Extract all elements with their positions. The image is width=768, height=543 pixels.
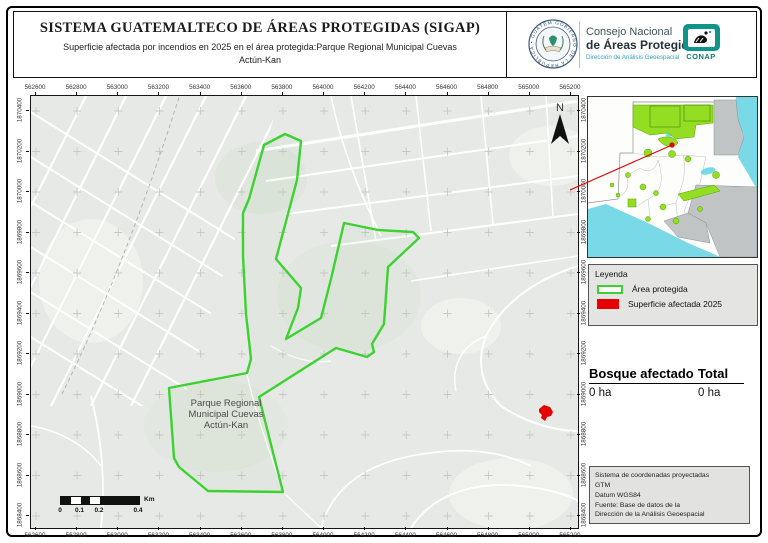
subtitle-line-1: Superficie afectada por incendios en 202… <box>63 42 457 52</box>
stats-divider <box>589 383 744 384</box>
axis-label-y: 1868400 <box>17 503 24 528</box>
scale-label: 0.4 <box>133 507 142 514</box>
credits-panel: Sistema de coordenadas proyectadasGTMDat… <box>589 466 750 524</box>
north-label: N <box>547 102 573 114</box>
axis-label-y: 1868600 <box>581 462 588 487</box>
axis-label-y: 1868400 <box>581 503 588 528</box>
axis-tick <box>26 232 29 233</box>
axis-label-x: 564000 <box>313 532 334 539</box>
north-arrow: N <box>547 102 573 151</box>
stats-col2-header: Total <box>698 366 744 381</box>
stats-col1-value: 0 ha <box>589 387 611 399</box>
legend-item: Área protegida <box>597 284 757 294</box>
axis-label-y: 1869000 <box>581 381 588 406</box>
inset-overview-map <box>587 96 758 258</box>
legend-items: Área protegidaSuperficie afectada 2025 <box>589 284 757 309</box>
credits-lines: Sistema de coordenadas proyectadasGTMDat… <box>595 471 744 520</box>
park-label-line: Parque Regional <box>151 398 301 409</box>
axis-label-x: 564600 <box>436 532 457 539</box>
legend-title: Leyenda <box>595 269 757 279</box>
axis-label-y: 1869000 <box>17 381 24 406</box>
page-title: SISTEMA GUATEMALTECO DE ÁREAS PROTEGIDAS… <box>24 20 496 37</box>
axis-label-x: 563800 <box>271 84 292 91</box>
legend-item-label: Área protegida <box>632 284 688 294</box>
map-report-page: { "header": { "title": "SISTEMA GUATEMAL… <box>0 0 768 543</box>
scale-bar <box>60 496 140 505</box>
axis-label-x: 563000 <box>107 532 128 539</box>
axis-tick <box>26 272 29 273</box>
burned-area-swatch <box>597 299 619 309</box>
axis-label-y: 1868600 <box>17 462 24 487</box>
axis-label-x: 563400 <box>189 532 210 539</box>
header: SISTEMA GUATEMALTECO DE ÁREAS PROTEGIDAS… <box>13 11 757 78</box>
axis-label-x: 563200 <box>148 84 169 91</box>
axis-label-x: 563200 <box>148 532 169 539</box>
axis-label-y: 1869400 <box>17 300 24 325</box>
stats-col2-value: 0 ha <box>698 387 744 399</box>
stats-value-row: 0 ha 0 ha <box>589 387 744 399</box>
axis-label-y: 1870400 <box>17 98 24 123</box>
axis-label-x: 564600 <box>436 84 457 91</box>
legend-panel: Leyenda Área protegidaSuperficie afectad… <box>588 264 758 326</box>
axis-label-x: 564000 <box>313 84 334 91</box>
conap-label: CONAP <box>679 52 723 61</box>
conap-logo-glyph <box>688 29 715 47</box>
subtitle-line-2: Actún-Kan <box>239 55 281 65</box>
stats-header-row: Bosque afectado Total <box>589 366 744 381</box>
legend-item: Superficie afectada 2025 <box>597 299 757 309</box>
logo-divider <box>579 21 580 68</box>
logo-area: GOBIERNO DE LA REPÚBLICA • GUATEMALA • C… <box>507 12 756 77</box>
axis-label-x: 565200 <box>559 84 580 91</box>
axis-label-x: 564800 <box>477 84 498 91</box>
axis-label-y: 1868800 <box>17 422 24 447</box>
axis-label-y: 1869800 <box>17 219 24 244</box>
main-map: Parque RegionalMunicipal CuevasActún-Kan… <box>30 95 579 529</box>
axis-tick <box>26 515 29 516</box>
protected-area-swatch <box>597 285 623 294</box>
conap-logo: CONAP <box>679 24 723 61</box>
axis-label-y: 1869400 <box>581 300 588 325</box>
north-arrow-icon <box>551 114 569 146</box>
axis-label-x: 563800 <box>271 532 292 539</box>
scale-label: 0.2 <box>94 507 103 514</box>
scale-unit: Km <box>144 496 154 503</box>
park-label-line: Municipal Cuevas <box>151 409 301 420</box>
scale-segment <box>71 497 81 504</box>
axis-label-y: 1870000 <box>17 179 24 204</box>
scale-label: 0.1 <box>75 507 84 514</box>
axis-label-x: 562600 <box>24 532 45 539</box>
axis-tick <box>26 353 29 354</box>
axis-tick <box>26 110 29 111</box>
scale-labels: 00.10.20.4 <box>60 507 150 517</box>
axis-tick <box>26 151 29 152</box>
scale: Km 00.10.20.4 <box>60 496 150 517</box>
credit-line: Sistema de coordenadas proyectadas <box>595 471 744 481</box>
guatemala-seal-icon: GOBIERNO DE LA REPÚBLICA • GUATEMALA • <box>527 18 579 70</box>
conap-logo-box <box>683 24 720 51</box>
axis-label-y: 1869200 <box>581 341 588 366</box>
legend-item-label: Superficie afectada 2025 <box>628 299 722 309</box>
axis-label-x: 565200 <box>559 532 580 539</box>
axis-tick <box>26 434 29 435</box>
scale-segment <box>61 497 71 504</box>
axis-label-y: 1869600 <box>581 260 588 285</box>
axis-label-x: 562800 <box>66 84 87 91</box>
axis-label-x: 564400 <box>395 532 416 539</box>
axis-tick <box>26 313 29 314</box>
map-canvas <box>31 96 578 528</box>
axis-label-y: 1868800 <box>581 422 588 447</box>
axis-label-y: 1869600 <box>17 260 24 285</box>
stats-panel: Bosque afectado Total 0 ha 0 ha <box>589 366 744 399</box>
inset-canvas <box>588 97 757 257</box>
axis-label-y: 1869200 <box>17 341 24 366</box>
axis-label-x: 564800 <box>477 532 498 539</box>
axis-label-x: 563600 <box>230 532 251 539</box>
scale-segment <box>100 497 139 504</box>
axis-label-x: 563000 <box>107 84 128 91</box>
stats-col1-header: Bosque afectado <box>589 366 694 381</box>
credit-line: GTM <box>595 481 744 491</box>
axis-tick <box>26 394 29 395</box>
axis-label-x: 564200 <box>354 532 375 539</box>
park-label-line: Actún-Kan <box>151 420 301 431</box>
title-area: SISTEMA GUATEMALTECO DE ÁREAS PROTEGIDAS… <box>14 12 507 77</box>
scale-segment <box>81 497 91 504</box>
axis-label-x: 565000 <box>518 84 539 91</box>
axis-label-x: 564400 <box>395 84 416 91</box>
credit-line: Datum WGS84 <box>595 491 744 501</box>
credit-line: Dirección de la Análisis Geoespacial <box>595 510 744 520</box>
axis-label-x: 562600 <box>24 84 45 91</box>
axis-tick <box>26 475 29 476</box>
axis-tick <box>26 191 29 192</box>
axis-label-x: 563600 <box>230 84 251 91</box>
axis-label-x: 565000 <box>518 532 539 539</box>
credit-line: Fuente: Base de datos de la <box>595 501 744 511</box>
page-subtitle: Superficie afectada por incendios en 202… <box>14 41 506 66</box>
axis-label-x: 563400 <box>189 84 210 91</box>
scale-segment <box>90 497 100 504</box>
axis-label-x: 562800 <box>66 532 87 539</box>
axis-label-y: 1870200 <box>17 138 24 163</box>
axis-label-x: 564200 <box>354 84 375 91</box>
scale-label: 0 <box>58 507 62 514</box>
park-label: Parque RegionalMunicipal CuevasActún-Kan <box>151 398 301 432</box>
